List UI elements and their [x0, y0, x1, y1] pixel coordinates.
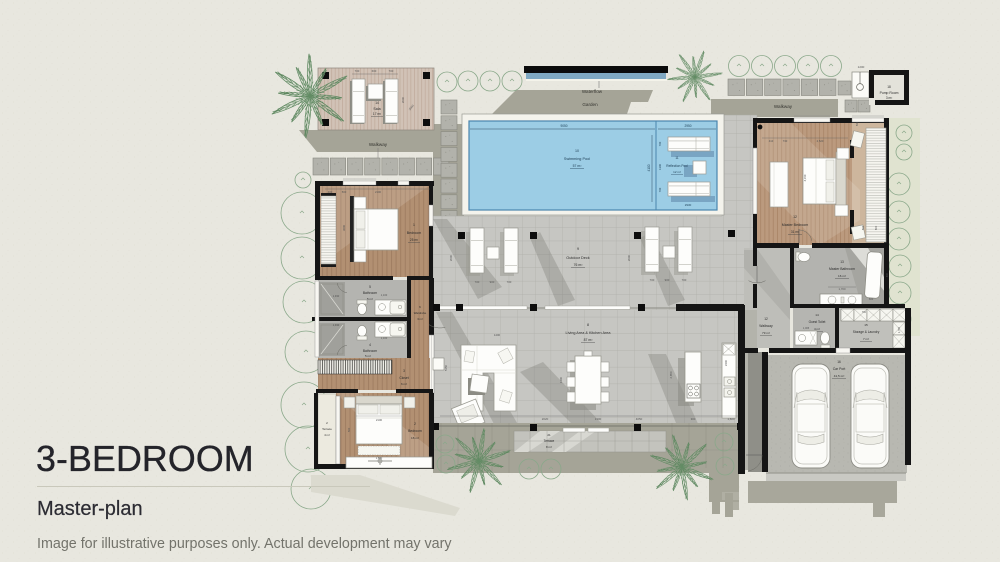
svg-text:400: 400: [328, 190, 333, 194]
svg-text:4: 4: [369, 343, 371, 347]
svg-text:Reflection Pool: Reflection Pool: [666, 164, 688, 168]
svg-text:1,760: 1,760: [898, 326, 901, 333]
svg-text:16 m²: 16 m²: [411, 436, 419, 440]
svg-text:300: 300: [691, 417, 696, 421]
svg-text:Bathroom: Bathroom: [363, 291, 378, 295]
svg-text:57 m²: 57 m²: [573, 164, 583, 168]
svg-text:2950: 2950: [684, 124, 691, 128]
svg-text:5 m²: 5 m²: [367, 297, 373, 301]
svg-text:2,520: 2,520: [817, 139, 824, 143]
svg-text:2: 2: [414, 422, 416, 426]
svg-text:500: 500: [342, 190, 347, 194]
svg-text:Closet: Closet: [399, 376, 408, 380]
svg-text:4 m²: 4 m²: [324, 433, 330, 437]
svg-text:900: 900: [886, 272, 889, 277]
svg-text:4,150: 4,150: [803, 174, 807, 181]
svg-text:1,930: 1,930: [333, 294, 340, 298]
svg-text:1,005: 1,005: [803, 327, 810, 330]
svg-text:6 m²: 6 m²: [401, 382, 407, 386]
svg-text:1,100: 1,100: [381, 336, 388, 340]
svg-text:Wardrobe: Wardrobe: [414, 311, 427, 315]
svg-text:700: 700: [658, 141, 662, 146]
svg-text:2000: 2000: [401, 96, 405, 103]
svg-text:500: 500: [347, 427, 351, 432]
svg-text:Bedroom: Bedroom: [408, 429, 422, 433]
svg-text:7 m²: 7 m²: [863, 337, 869, 341]
svg-text:5 m²: 5 m²: [365, 354, 371, 358]
svg-text:10: 10: [575, 149, 579, 153]
svg-text:Walkway: Walkway: [774, 104, 793, 109]
svg-text:600: 600: [874, 225, 878, 230]
svg-text:79 m²: 79 m²: [762, 331, 770, 335]
svg-text:730: 730: [783, 139, 788, 143]
svg-text:16: 16: [837, 360, 841, 364]
svg-text:4050: 4050: [636, 417, 643, 421]
svg-text:700: 700: [507, 280, 512, 284]
svg-text:2100: 2100: [376, 418, 383, 422]
svg-text:2400: 2400: [724, 359, 728, 366]
svg-text:700: 700: [355, 69, 360, 73]
svg-text:41,5 m²: 41,5 m²: [834, 374, 845, 378]
svg-text:Outdoor Deck: Outdoor Deck: [566, 256, 590, 260]
svg-text:900: 900: [665, 278, 670, 282]
svg-text:2020: 2020: [542, 417, 549, 421]
svg-text:18: 18: [887, 85, 891, 89]
svg-text:1: 1: [413, 223, 415, 227]
svg-text:3000: 3000: [342, 225, 346, 231]
svg-text:Car Port: Car Port: [833, 367, 846, 371]
svg-text:700: 700: [475, 280, 480, 284]
svg-text:500: 500: [856, 121, 859, 126]
svg-text:87 m²: 87 m²: [584, 338, 594, 342]
svg-text:2,850: 2,850: [669, 371, 673, 378]
svg-text:1,100: 1,100: [381, 293, 388, 297]
svg-text:1,600: 1,600: [727, 417, 735, 421]
svg-text:Garden: Garden: [582, 102, 598, 107]
svg-text:11: 11: [675, 156, 679, 160]
svg-text:9050: 9050: [560, 124, 567, 128]
svg-text:700: 700: [682, 278, 687, 282]
svg-text:410: 410: [769, 139, 774, 143]
svg-text:5150: 5150: [444, 364, 448, 371]
svg-text:13: 13: [840, 260, 844, 264]
svg-text:12: 12: [764, 317, 768, 321]
svg-text:25 m²: 25 m²: [410, 238, 418, 242]
svg-text:Swimming Pool: Swimming Pool: [564, 157, 590, 161]
svg-text:700: 700: [389, 69, 394, 73]
svg-text:600: 600: [869, 297, 874, 301]
svg-text:2100: 2100: [375, 190, 381, 194]
svg-text:Guest Toilet: Guest Toilet: [809, 320, 826, 324]
svg-text:Walkway: Walkway: [759, 324, 773, 328]
svg-text:17 m²: 17 m²: [373, 112, 381, 116]
svg-text:8: 8: [587, 323, 589, 327]
svg-text:Bathroom: Bathroom: [363, 349, 378, 353]
svg-text:2000: 2000: [627, 254, 631, 261]
svg-text:3: 3: [403, 369, 405, 373]
svg-text:Sala: Sala: [373, 107, 380, 111]
svg-text:600: 600: [372, 69, 377, 73]
svg-text:1,700: 1,700: [839, 287, 846, 291]
svg-text:Waterflow: Waterflow: [582, 89, 603, 94]
svg-text:4100: 4100: [647, 164, 651, 171]
svg-text:9: 9: [577, 247, 579, 251]
svg-text:700: 700: [650, 278, 655, 282]
svg-text:Terrace: Terrace: [544, 439, 555, 443]
svg-text:4 m²: 4 m²: [814, 327, 820, 331]
svg-text:1,930: 1,930: [333, 323, 340, 327]
svg-text:1300: 1300: [658, 164, 662, 170]
svg-text:2930: 2930: [685, 203, 692, 207]
svg-text:15: 15: [864, 323, 868, 327]
svg-text:Bedroom: Bedroom: [407, 231, 422, 235]
svg-text:700: 700: [862, 311, 867, 314]
svg-text:12: 12: [793, 215, 797, 219]
svg-text:2000: 2000: [449, 254, 453, 261]
svg-text:8 m²: 8 m²: [546, 445, 552, 449]
svg-text:1300: 1300: [595, 417, 602, 421]
svg-text:1400: 1400: [494, 333, 501, 337]
svg-text:900: 900: [490, 280, 495, 284]
svg-text:Living Area & Kitchen Area: Living Area & Kitchen Area: [566, 331, 612, 335]
svg-text:3 m²: 3 m²: [886, 96, 892, 100]
svg-text:3 m²: 3 m²: [417, 317, 423, 321]
svg-text:5: 5: [369, 285, 371, 289]
svg-text:12 m²: 12 m²: [673, 170, 681, 174]
svg-text:Master Bedroom: Master Bedroom: [782, 223, 809, 227]
svg-text:Storage & Laundry: Storage & Laundry: [853, 330, 880, 334]
svg-text:700: 700: [658, 187, 662, 192]
svg-text:14: 14: [815, 313, 819, 317]
svg-text:14: 14: [375, 101, 379, 105]
svg-text:Walkway: Walkway: [369, 142, 388, 147]
svg-text:600: 600: [861, 225, 865, 230]
svg-text:1400: 1400: [559, 376, 563, 383]
svg-text:1200: 1200: [858, 65, 865, 69]
svg-text:21: 21: [547, 433, 551, 437]
svg-text:16 m²: 16 m²: [838, 274, 846, 278]
svg-text:Master Bathroom: Master Bathroom: [829, 267, 855, 271]
svg-text:1,800: 1,800: [376, 456, 383, 460]
svg-text:31 m²: 31 m²: [791, 230, 799, 234]
svg-text:Pump Room: Pump Room: [880, 91, 899, 95]
svg-text:Terrace: Terrace: [322, 427, 332, 431]
svg-text:76 m²: 76 m²: [574, 263, 584, 267]
